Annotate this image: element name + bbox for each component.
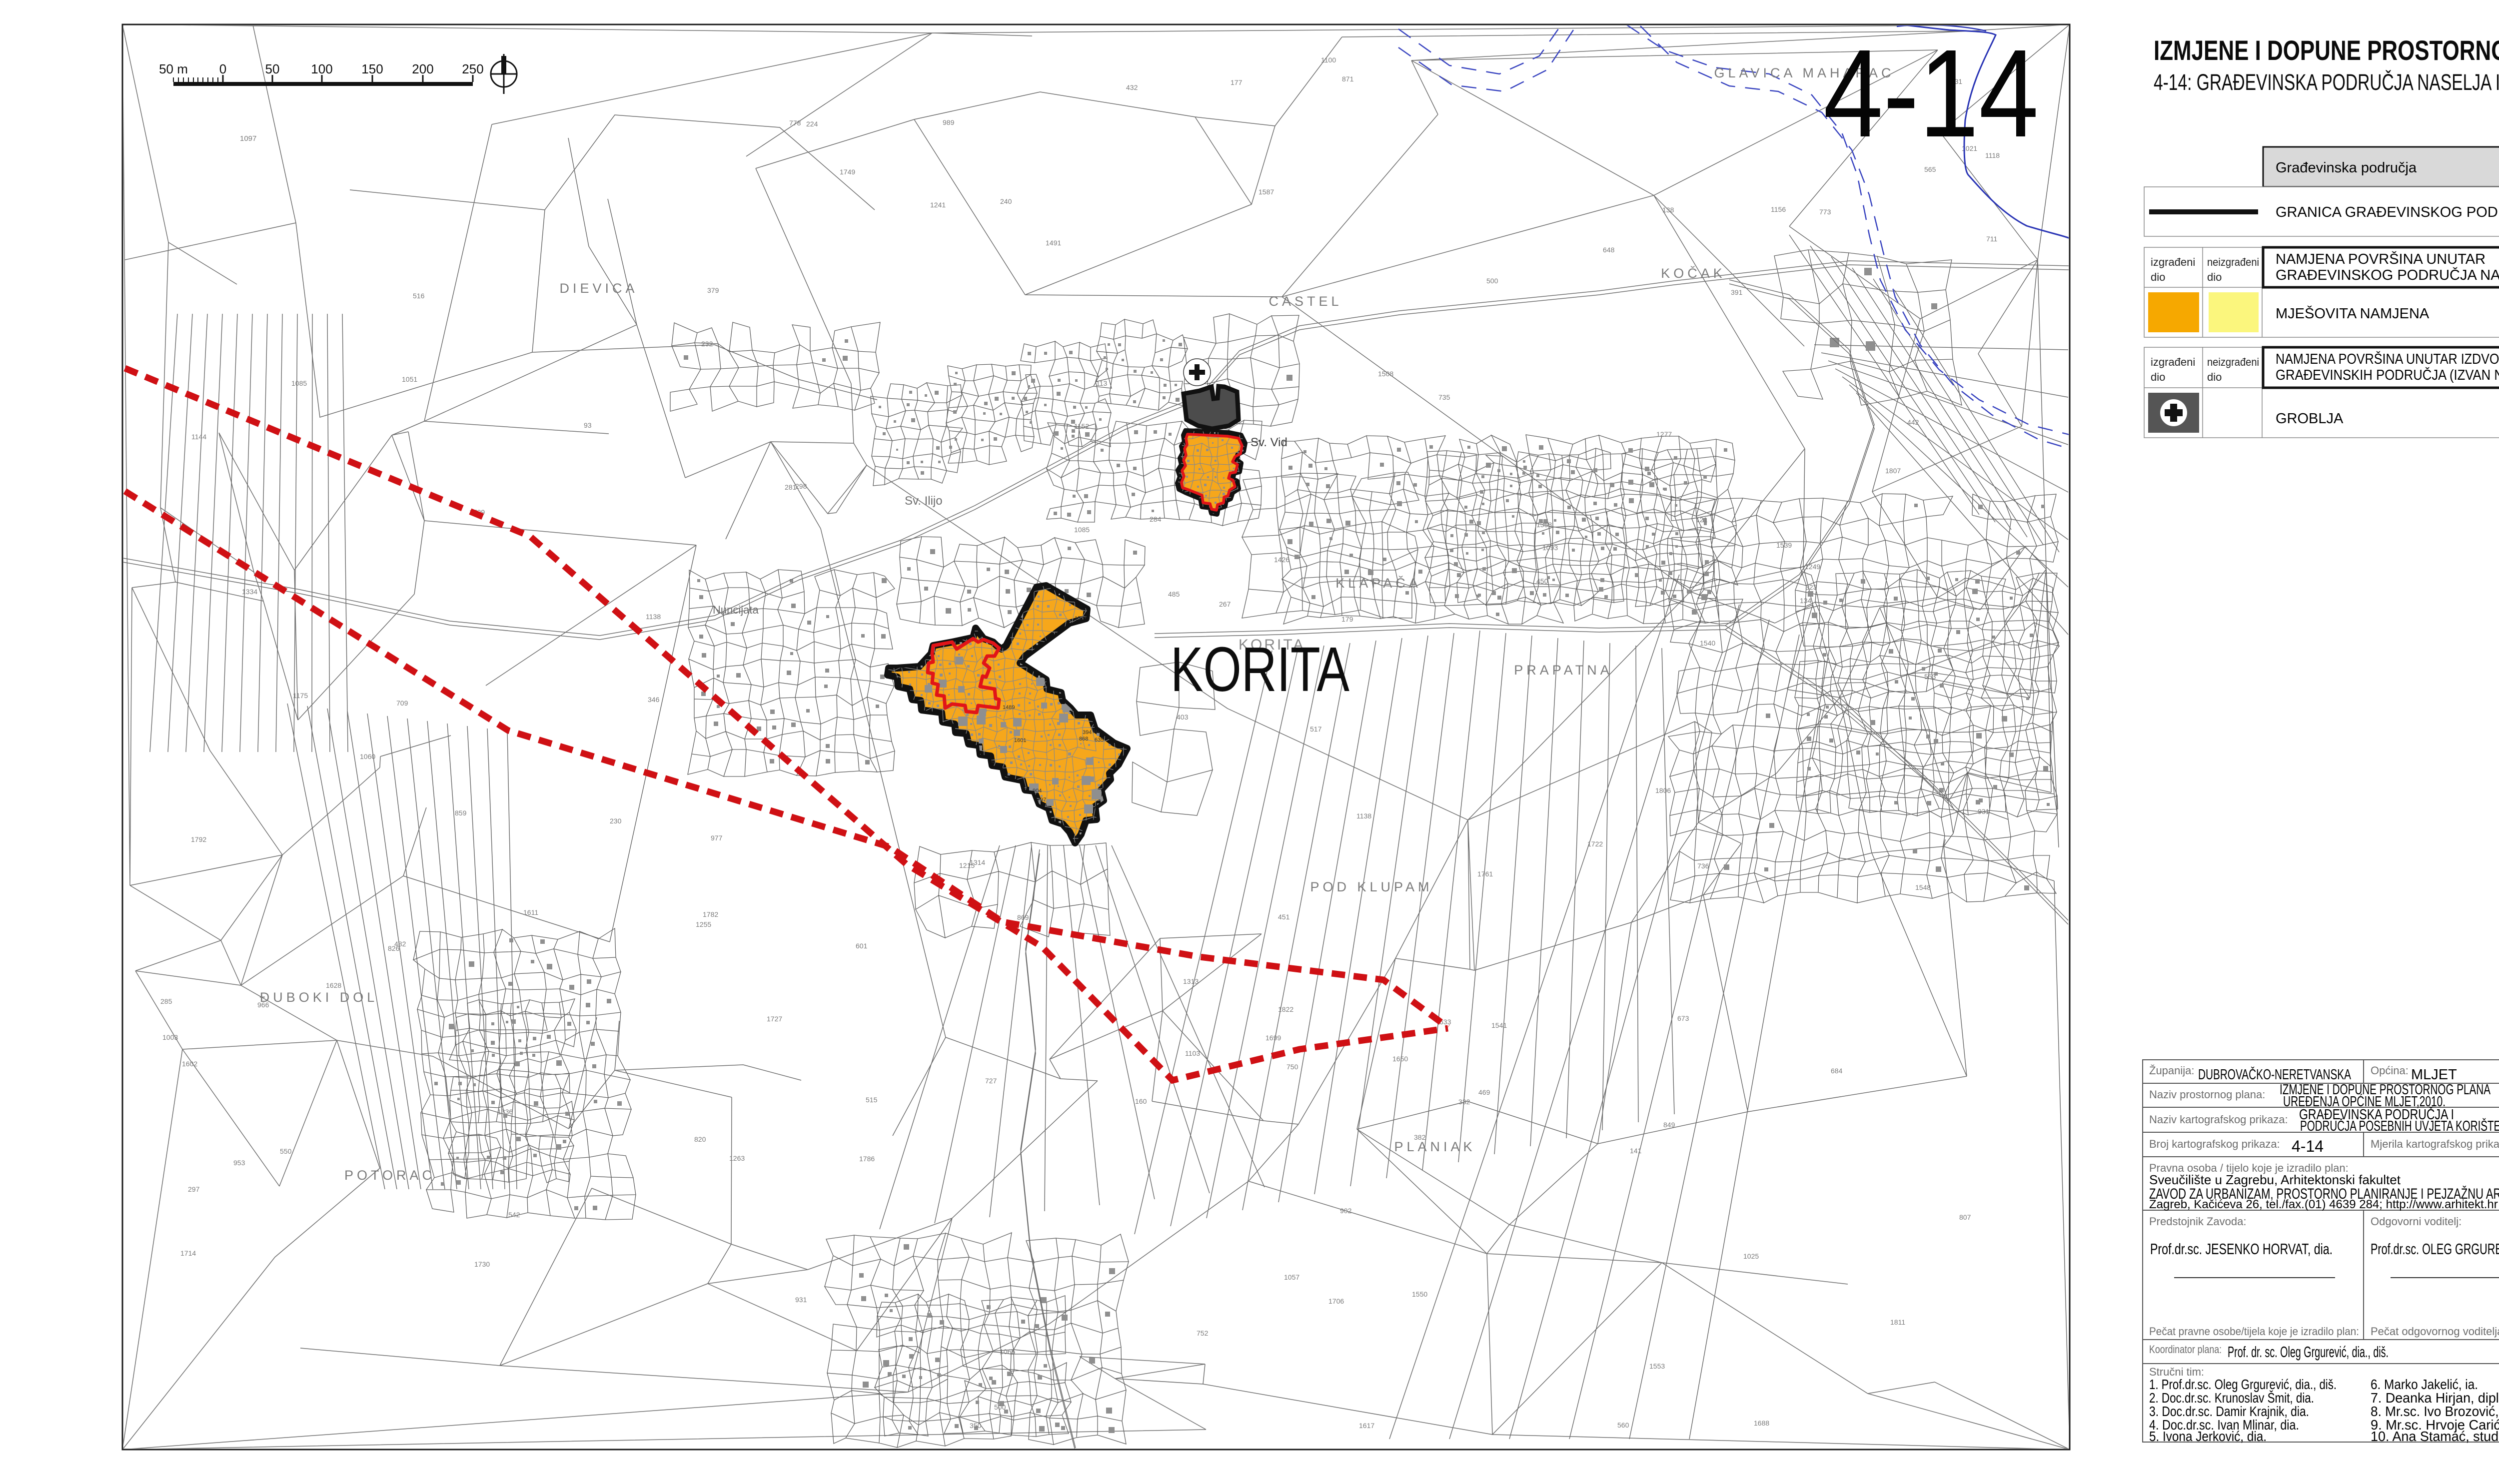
svg-text:1066: 1066 — [1000, 1348, 1015, 1356]
svg-text:neizgrađeni: neizgrađeni — [2207, 256, 2259, 268]
svg-text:1085: 1085 — [291, 379, 307, 387]
svg-text:POD KLUPAM: POD KLUPAM — [1310, 879, 1432, 894]
svg-text:0: 0 — [219, 61, 226, 76]
svg-text:177: 177 — [1231, 78, 1243, 86]
svg-text:450: 450 — [1536, 577, 1548, 585]
svg-text:1761: 1761 — [1477, 870, 1493, 878]
svg-text:Sveučilište u Zagrebu, Arhitek: Sveučilište u Zagrebu, Arhitektonski fak… — [2149, 1172, 2401, 1187]
svg-text:1602: 1602 — [182, 1060, 197, 1068]
svg-text:1706: 1706 — [1328, 1297, 1344, 1305]
svg-text:750: 750 — [1286, 1063, 1298, 1071]
svg-text:DIEVICA: DIEVICA — [559, 281, 638, 296]
svg-text:ĐUBOKI DOL: ĐUBOKI DOL — [260, 990, 378, 1005]
svg-text:267: 267 — [1219, 600, 1231, 608]
svg-text:1587: 1587 — [1258, 188, 1274, 196]
svg-text:Prof.dr.sc. JESENKO HORVAT, di: Prof.dr.sc. JESENKO HORVAT, dia. — [2150, 1240, 2333, 1258]
svg-text:1100: 1100 — [1321, 56, 1336, 64]
svg-text:1241: 1241 — [930, 201, 946, 209]
svg-text:868: 868 — [1079, 736, 1088, 742]
svg-text:515: 515 — [866, 1096, 878, 1104]
svg-text:1051: 1051 — [402, 375, 417, 383]
svg-text:Mjerila kartografskog prikaza:: Mjerila kartografskog prikaza: — [2371, 1138, 2499, 1150]
svg-text:1540: 1540 — [1700, 639, 1715, 647]
svg-text:1806: 1806 — [1655, 786, 1671, 794]
svg-text:752: 752 — [1197, 1329, 1209, 1337]
svg-text:DUBROVAČKO-NERETVANSKA: DUBROVAČKO-NERETVANSKA — [2198, 1066, 2351, 1083]
svg-text:1152: 1152 — [1074, 422, 1089, 430]
svg-text:560: 560 — [1617, 1421, 1629, 1429]
svg-text:232: 232 — [701, 340, 713, 348]
svg-text:1426: 1426 — [1274, 556, 1289, 564]
svg-text:871: 871 — [1342, 75, 1354, 83]
svg-text:4-14: 4-14 — [2292, 1137, 2324, 1155]
svg-text:1601: 1601 — [1014, 738, 1026, 743]
svg-text:1314: 1314 — [970, 858, 985, 866]
svg-text:Sv. Ilijo: Sv. Ilijo — [905, 494, 943, 508]
svg-text:1358: 1358 — [1536, 521, 1552, 529]
svg-text:550: 550 — [280, 1147, 292, 1155]
svg-text:931: 931 — [795, 1296, 807, 1304]
svg-text:Naziv prostornog plana:: Naziv prostornog plana: — [2149, 1088, 2265, 1101]
svg-text:1822: 1822 — [1278, 1005, 1293, 1013]
svg-text:GRAĐEVINSKIH PODRUČJA (IZVAN N: GRAĐEVINSKIH PODRUČJA (IZVAN NASELJA) — [2276, 366, 2499, 383]
svg-text:134: 134 — [1800, 597, 1812, 605]
svg-text:1057: 1057 — [1284, 1273, 1299, 1281]
svg-text:PRAPATNA: PRAPATNA — [1514, 663, 1613, 678]
svg-text:1489: 1489 — [1003, 705, 1015, 711]
svg-text:1138: 1138 — [1356, 812, 1371, 820]
svg-text:1539: 1539 — [1776, 541, 1792, 549]
svg-text:1782: 1782 — [703, 910, 718, 918]
svg-text:1792: 1792 — [191, 835, 206, 843]
svg-text:778: 778 — [789, 119, 801, 127]
svg-text:332: 332 — [1458, 1098, 1470, 1106]
svg-text:391: 391 — [1731, 288, 1743, 296]
svg-text:KOČAK: KOČAK — [1661, 265, 1726, 281]
svg-text:1699: 1699 — [1265, 1034, 1281, 1042]
svg-text:Pečat pravne osobe/tijela koje: Pečat pravne osobe/tijela koje je izradi… — [2149, 1325, 2359, 1338]
svg-text:902: 902 — [1340, 1207, 1352, 1215]
svg-text:849: 849 — [1663, 1121, 1675, 1129]
svg-text:KLAPAČA: KLAPAČA — [1335, 575, 1421, 591]
svg-text:1617: 1617 — [1359, 1422, 1374, 1430]
svg-text:1611: 1611 — [523, 908, 538, 916]
svg-text:869: 869 — [1017, 913, 1029, 921]
svg-text:160: 160 — [1135, 1097, 1147, 1105]
svg-text:516: 516 — [413, 292, 425, 300]
svg-text:Zagreb, Kačićeva 26, tel./fax.: Zagreb, Kačićeva 26, tel./fax.(01) 4639 … — [2149, 1198, 2498, 1211]
svg-text:4-14: 4-14 — [1823, 23, 2039, 163]
svg-text:dio: dio — [2151, 371, 2165, 383]
svg-text:500: 500 — [994, 1403, 1006, 1411]
svg-text:469: 469 — [1478, 1088, 1490, 1096]
svg-text:1085: 1085 — [1074, 526, 1090, 534]
svg-text:297: 297 — [188, 1185, 200, 1193]
svg-text:dio: dio — [2151, 271, 2165, 283]
svg-text:Predstojnik Zavoda:: Predstojnik Zavoda: — [2149, 1215, 2246, 1228]
svg-text:1730: 1730 — [474, 1260, 490, 1268]
svg-text:635: 635 — [1095, 737, 1104, 743]
svg-text:PODRUČJA POSEBNIH UVJETA KORIŠ: PODRUČJA POSEBNIH UVJETA KORIŠTENJA — [2300, 1117, 2499, 1134]
svg-text:150: 150 — [361, 61, 383, 76]
svg-text:1025: 1025 — [1743, 1252, 1759, 1260]
svg-text:Općina:: Općina: — [2371, 1064, 2409, 1077]
svg-text:KORITA: KORITA — [1171, 634, 1349, 705]
svg-text:Nuncijata: Nuncijata — [713, 604, 759, 616]
svg-text:50 m: 50 m — [159, 61, 188, 76]
svg-text:1249: 1249 — [1805, 563, 1820, 571]
svg-text:1097: 1097 — [240, 134, 256, 143]
svg-text:179: 179 — [1341, 615, 1353, 623]
svg-text:PLANIAK: PLANIAK — [1394, 1139, 1475, 1154]
svg-text:673: 673 — [1677, 1014, 1689, 1022]
svg-text:350: 350 — [970, 1422, 982, 1430]
svg-text:442: 442 — [1907, 418, 1919, 426]
svg-text:485: 485 — [1168, 590, 1180, 598]
svg-text:1508: 1508 — [1378, 370, 1393, 378]
svg-text:977: 977 — [711, 834, 723, 842]
svg-text:1313: 1313 — [1183, 977, 1199, 985]
svg-text:859: 859 — [455, 809, 467, 817]
svg-text:1650: 1650 — [1392, 1055, 1408, 1063]
svg-text:1060: 1060 — [360, 752, 375, 760]
svg-text:POTORAC: POTORAC — [344, 1168, 435, 1183]
svg-text:1103: 1103 — [1185, 1049, 1200, 1057]
svg-text:Građevinska područja: Građevinska područja — [2276, 160, 2417, 176]
svg-text:GRANICA GRAĐEVINSKOG PODRUČJA: GRANICA GRAĐEVINSKOG PODRUČJA — [2276, 203, 2499, 220]
svg-text:797: 797 — [1037, 797, 1046, 803]
svg-text:1548: 1548 — [1915, 883, 1931, 891]
svg-text:NAMJENA POVRŠINA UNUTAR: NAMJENA POVRŠINA UNUTAR — [2276, 250, 2486, 267]
svg-text:1156: 1156 — [1771, 205, 1786, 213]
svg-text:Naziv kartografskog prikaza:: Naziv kartografskog prikaza: — [2149, 1113, 2288, 1126]
svg-text:284: 284 — [1150, 515, 1162, 523]
svg-text:NAMJENA POVRŠINA UNUTAR IZDVOJ: NAMJENA POVRŠINA UNUTAR IZDVOJENIH — [2276, 350, 2499, 367]
svg-text:1727: 1727 — [767, 1015, 782, 1023]
svg-text:138: 138 — [1662, 206, 1674, 214]
svg-text:1714: 1714 — [180, 1249, 196, 1257]
svg-text:553: 553 — [1924, 673, 1936, 681]
svg-text:izgrađeni: izgrađeni — [2151, 256, 2195, 268]
svg-text:10. Ana Stamać, stud.arh.: 10. Ana Stamać, stud.arh. — [2371, 1429, 2499, 1444]
svg-text:379: 379 — [707, 286, 719, 294]
svg-text:240: 240 — [1000, 197, 1012, 205]
svg-text:727: 727 — [985, 1077, 997, 1085]
svg-text:dio: dio — [2207, 371, 2222, 383]
svg-text:141: 141 — [1630, 1147, 1642, 1155]
svg-text:100: 100 — [311, 61, 332, 76]
svg-text:989: 989 — [943, 118, 955, 126]
svg-text:403: 403 — [1177, 713, 1189, 721]
svg-text:Broj kartografskog prikaza:: Broj kartografskog prikaza: — [2149, 1138, 2280, 1150]
svg-text:773: 773 — [1819, 208, 1831, 216]
svg-text:1175: 1175 — [293, 692, 308, 700]
svg-text:GROBLJA: GROBLJA — [2276, 411, 2344, 427]
svg-text:Sv. Vid: Sv. Vid — [1250, 436, 1287, 449]
svg-text:601: 601 — [856, 942, 868, 950]
svg-text:931: 931 — [1978, 807, 1990, 815]
svg-text:298: 298 — [795, 482, 807, 490]
svg-text:684: 684 — [1831, 1067, 1843, 1075]
svg-text:93: 93 — [584, 421, 592, 429]
svg-text:121: 121 — [1696, 516, 1708, 524]
svg-text:709: 709 — [396, 699, 408, 707]
svg-text:285: 285 — [160, 997, 172, 1005]
svg-text:200: 200 — [412, 61, 433, 76]
svg-text:711: 711 — [1986, 235, 1998, 243]
svg-text:IZMJENE I DOPUNE PROSTORNOG PL: IZMJENE I DOPUNE PROSTORNOG PLANA UREĐEN… — [2154, 34, 2499, 66]
svg-text:1553: 1553 — [1649, 1362, 1665, 1370]
svg-text:432: 432 — [1126, 83, 1138, 91]
svg-text:1263: 1263 — [729, 1154, 745, 1162]
svg-text:Županija:: Županija: — [2149, 1064, 2195, 1077]
svg-text:Prof.dr.sc. OLEG GRGUREVIĆ, di: Prof.dr.sc. OLEG GRGUREVIĆ, dia., diš. — [2371, 1240, 2499, 1258]
svg-text:500: 500 — [1486, 277, 1498, 285]
svg-text:MJEŠOVITA NAMJENA: MJEŠOVITA NAMJENA — [2276, 305, 2430, 322]
svg-text:224: 224 — [806, 120, 818, 128]
svg-text:1491: 1491 — [1046, 239, 1061, 247]
svg-text:1807: 1807 — [1885, 467, 1901, 475]
svg-text:1255: 1255 — [696, 920, 711, 928]
svg-text:1138: 1138 — [646, 613, 661, 621]
svg-text:GRAĐEVINSKOG PODRUČJA NASELJA: GRAĐEVINSKOG PODRUČJA NASELJA — [2276, 266, 2499, 283]
svg-text:1811: 1811 — [1890, 1318, 1905, 1326]
svg-text:Odgovorni voditelj:: Odgovorni voditelj: — [2371, 1215, 2462, 1228]
svg-text:394: 394 — [1083, 730, 1092, 736]
svg-text:neizgrađeni: neizgrađeni — [2207, 356, 2259, 368]
svg-text:346: 346 — [648, 696, 660, 704]
svg-text:1722: 1722 — [1587, 840, 1603, 848]
svg-text:Pečat odgovornog voditelja:: Pečat odgovornog voditelja: — [2371, 1325, 2499, 1338]
svg-text:1550: 1550 — [1412, 1290, 1427, 1298]
svg-text:MLJET: MLJET — [2411, 1067, 2457, 1083]
svg-text:323: 323 — [1805, 583, 1817, 591]
svg-text:565: 565 — [1924, 165, 1936, 173]
svg-text:1628: 1628 — [326, 981, 341, 989]
svg-text:5. Ivona Jerković, dia.: 5. Ivona Jerković, dia. — [2149, 1429, 2267, 1444]
svg-text:807: 807 — [1959, 1213, 1971, 1221]
svg-text:820: 820 — [694, 1135, 706, 1143]
svg-text:1786: 1786 — [859, 1155, 875, 1163]
svg-text:736: 736 — [1697, 862, 1709, 870]
svg-text:648: 648 — [1603, 246, 1615, 254]
svg-text:1336: 1336 — [497, 1108, 513, 1116]
svg-text:1003: 1003 — [162, 1033, 178, 1041]
svg-text:1688: 1688 — [1754, 1419, 1769, 1427]
svg-text:1277: 1277 — [1656, 430, 1672, 438]
svg-text:50: 50 — [265, 61, 280, 76]
svg-text:250: 250 — [462, 61, 483, 76]
svg-text:CASTEL: CASTEL — [1268, 294, 1342, 309]
svg-text:1749: 1749 — [840, 168, 855, 176]
svg-text:451: 451 — [1278, 913, 1290, 921]
svg-text:4-14: GRAĐEVINSKA PODRUČJA NAS: 4-14: GRAĐEVINSKA PODRUČJA NASELJA I POD… — [2154, 69, 2499, 95]
svg-text:1541: 1541 — [1491, 1021, 1507, 1029]
svg-text:1093: 1093 — [1542, 544, 1558, 552]
svg-text:113: 113 — [1096, 379, 1108, 387]
svg-text:Prof. dr. sc. Oleg Grgurević,: Prof. dr. sc. Oleg Grgurević, dia., diš. — [2228, 1343, 2389, 1361]
svg-text:826: 826 — [388, 944, 400, 952]
svg-text:dio: dio — [2207, 271, 2222, 283]
svg-text:230: 230 — [610, 817, 622, 825]
svg-text:953: 953 — [233, 1159, 245, 1167]
svg-text:Koordinator plana:: Koordinator plana: — [2149, 1343, 2222, 1356]
svg-text:517: 517 — [1310, 725, 1322, 733]
svg-text:542: 542 — [508, 1211, 520, 1219]
svg-text:735: 735 — [1438, 393, 1450, 401]
svg-text:izgrađeni: izgrađeni — [2151, 356, 2195, 368]
svg-text:1144: 1144 — [191, 433, 206, 441]
svg-text:1334: 1334 — [242, 588, 257, 596]
